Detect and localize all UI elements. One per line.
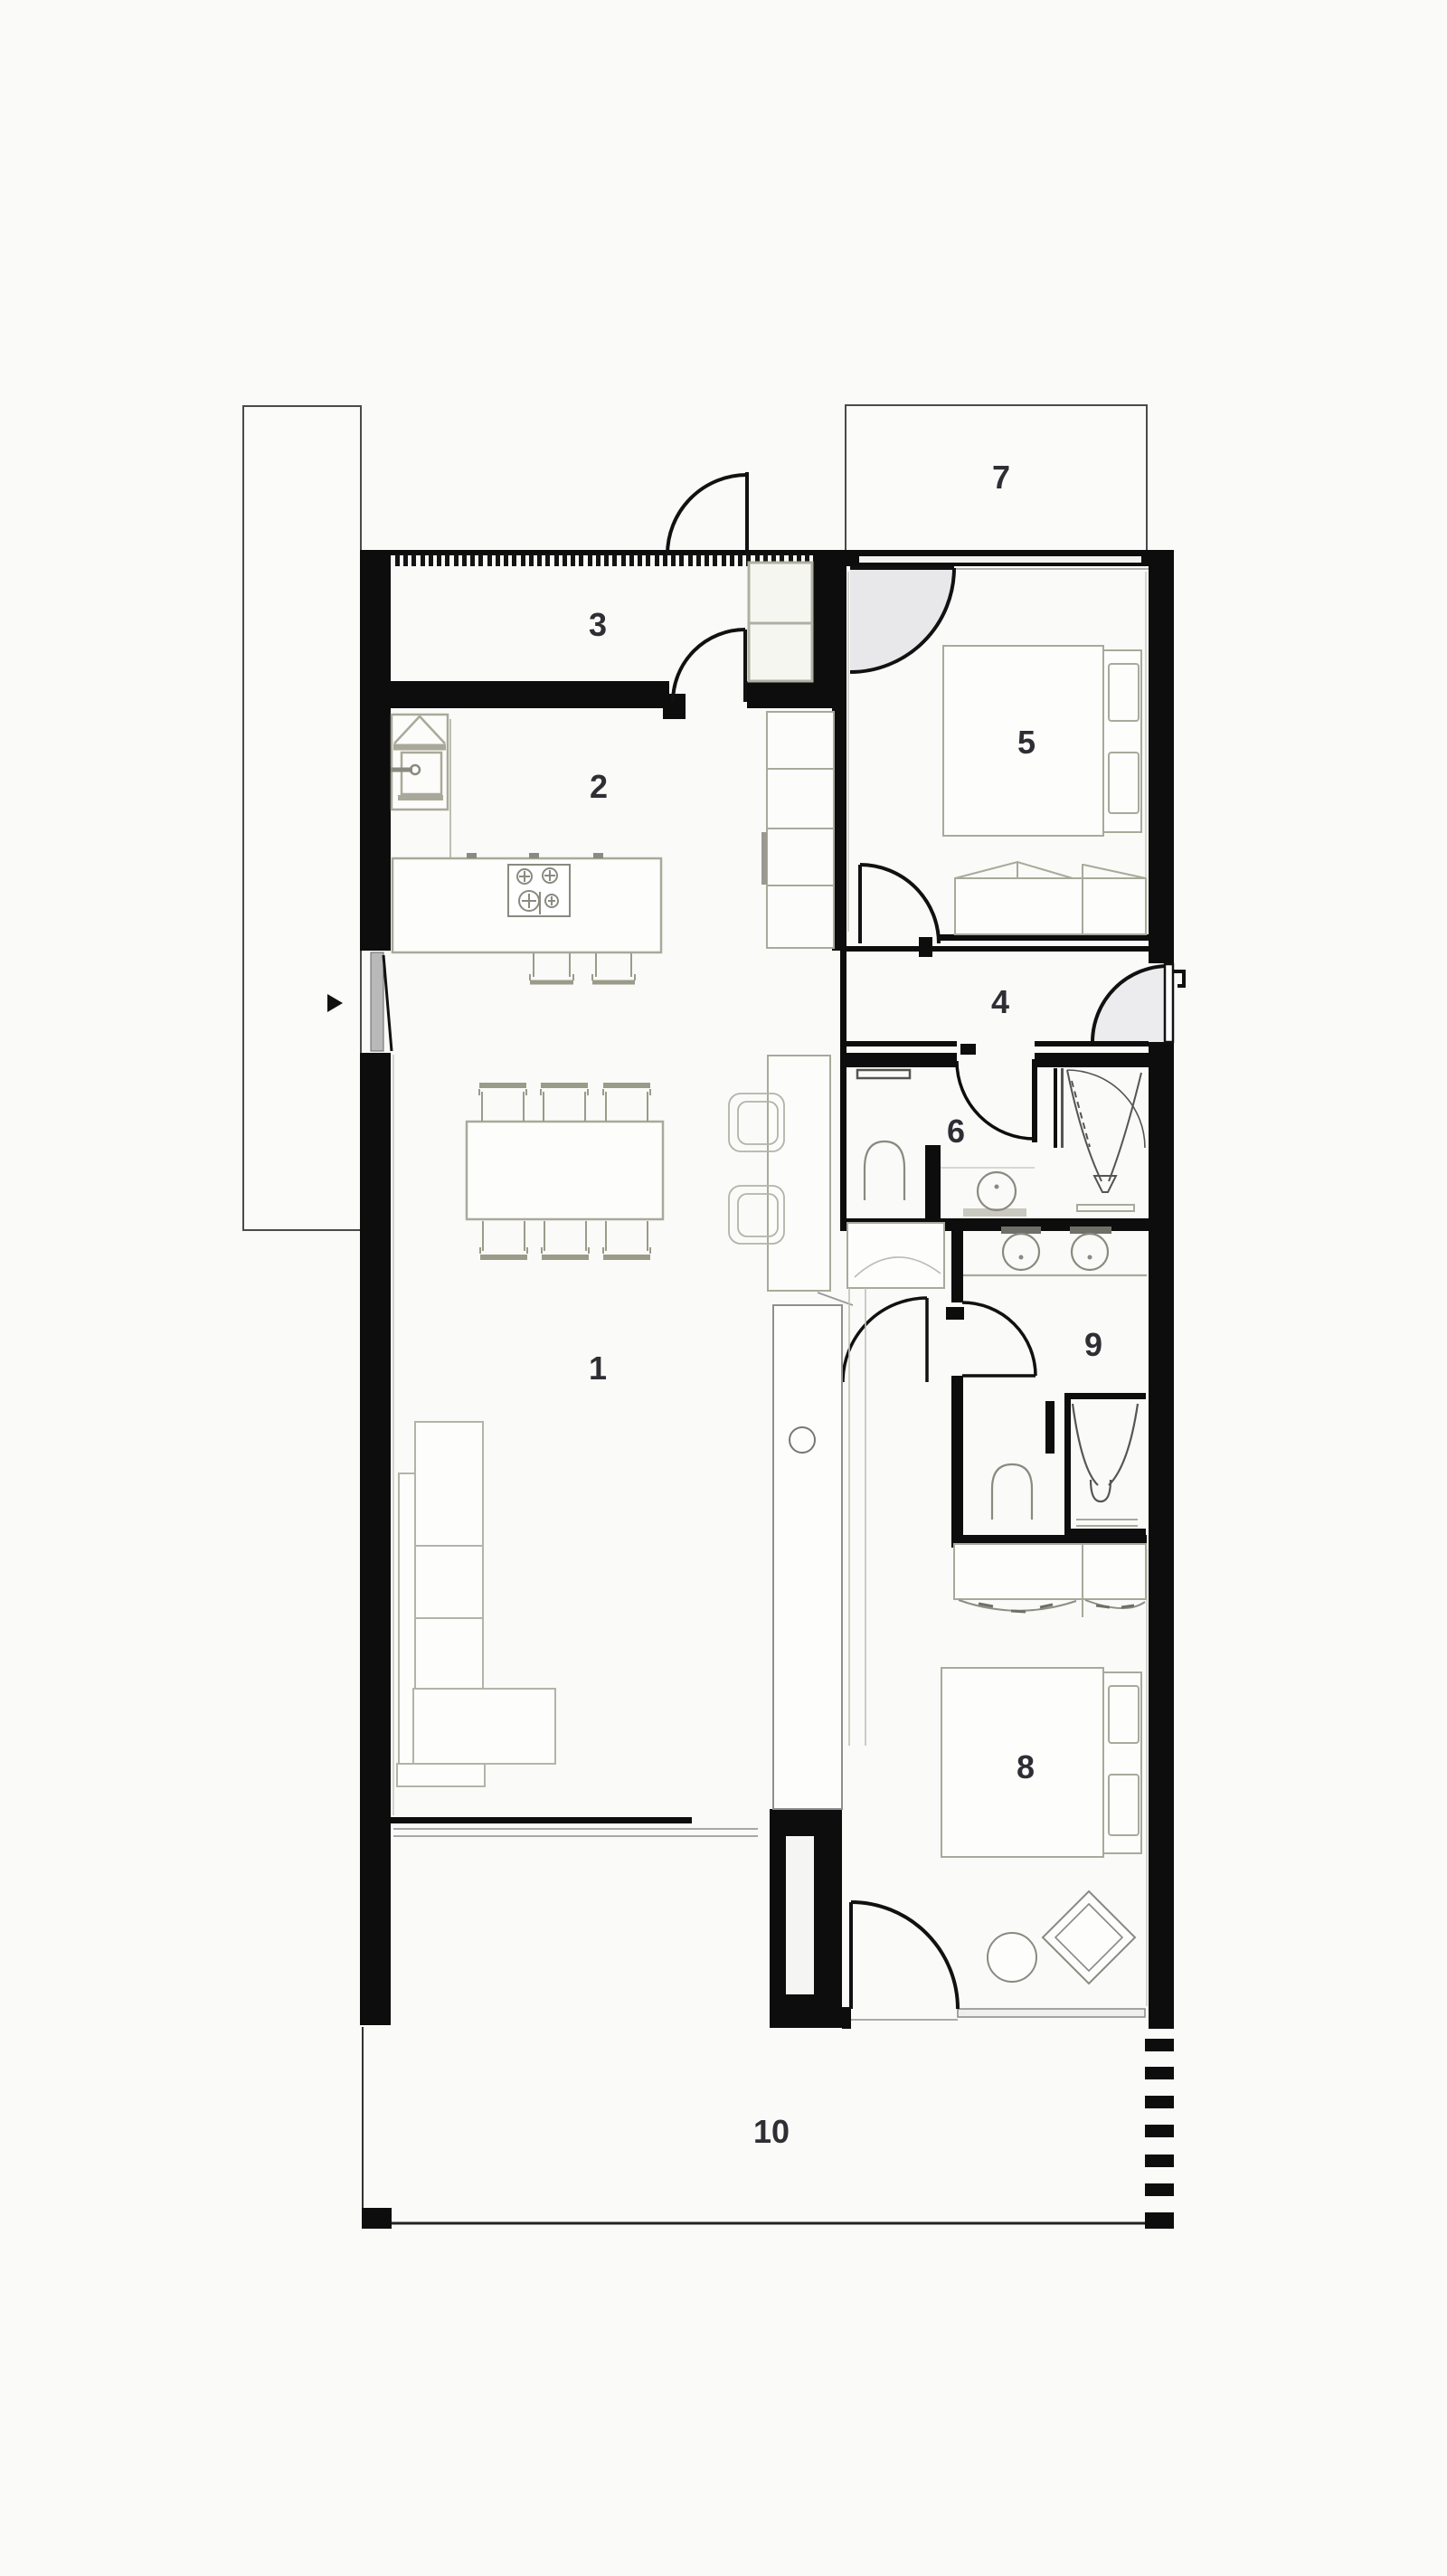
svg-text:7: 7: [992, 459, 1010, 496]
svg-text:2: 2: [590, 768, 608, 805]
svg-text:4: 4: [991, 983, 1009, 1020]
svg-text:1: 1: [589, 1350, 607, 1387]
svg-text:6: 6: [947, 1113, 965, 1150]
svg-text:8: 8: [1017, 1748, 1035, 1785]
svg-text:10: 10: [753, 2113, 790, 2150]
svg-text:5: 5: [1017, 724, 1036, 761]
svg-text:9: 9: [1084, 1326, 1102, 1363]
svg-text:3: 3: [589, 606, 607, 643]
